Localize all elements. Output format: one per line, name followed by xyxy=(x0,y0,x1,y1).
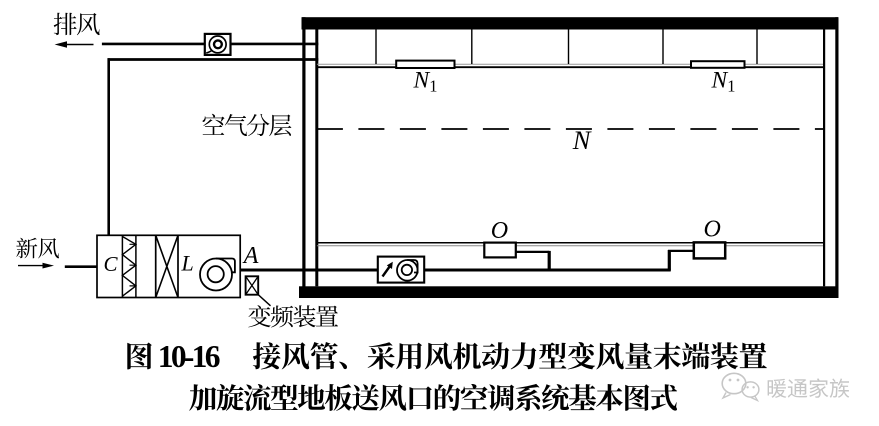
svg-text:A: A xyxy=(242,243,259,269)
svg-text:N: N xyxy=(572,125,592,155)
svg-text:O: O xyxy=(704,217,721,243)
svg-text:L: L xyxy=(181,251,194,276)
svg-text:10-16: 10-16 xyxy=(158,339,220,374)
svg-text:C: C xyxy=(104,252,119,276)
svg-text:O: O xyxy=(491,218,508,244)
